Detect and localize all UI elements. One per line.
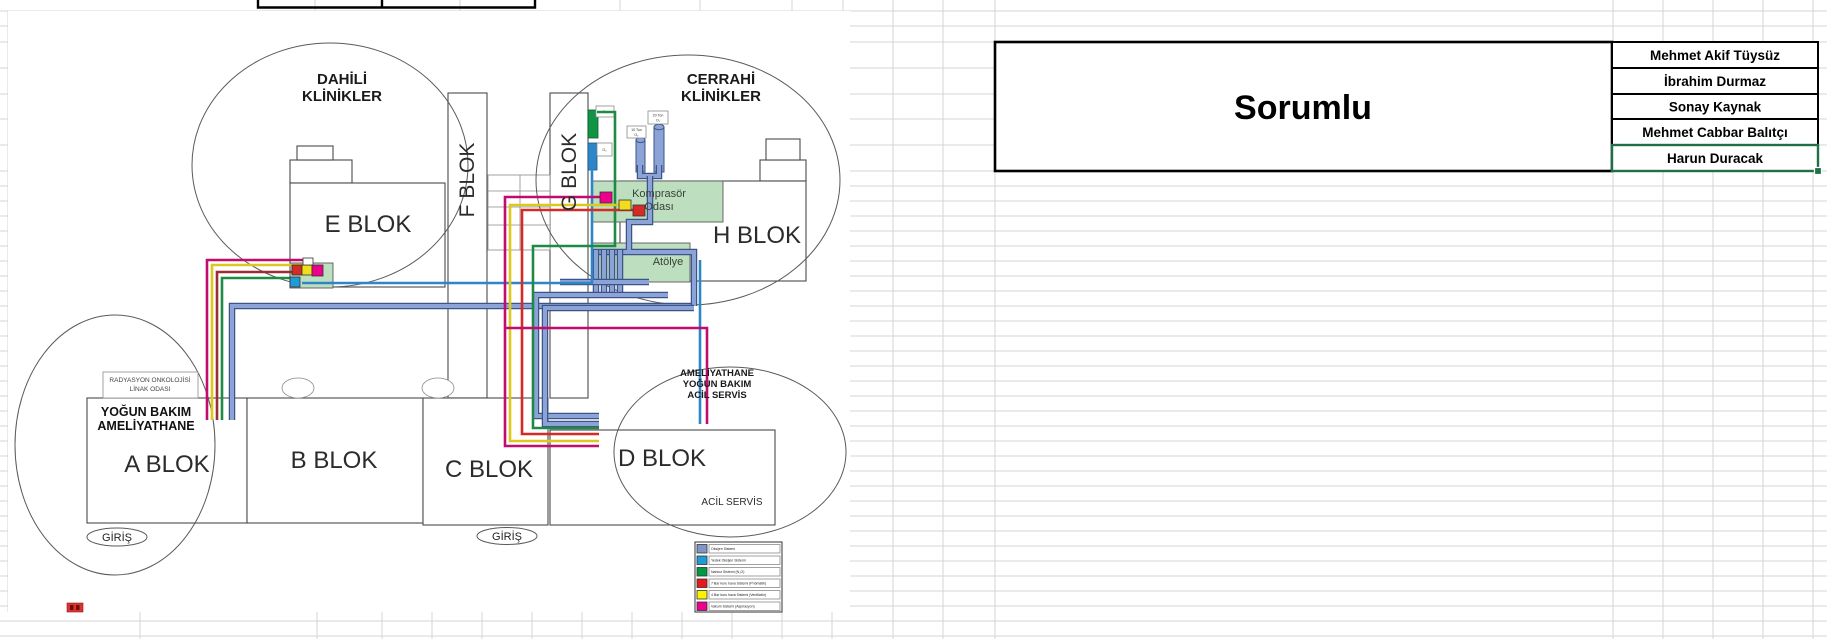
label-kompresor-line1: Komprasör [632,188,686,200]
name-2: İbrahim Durmaz [1664,74,1766,89]
legend-label-7bar: 7 Bar kuru hava Sistemi (Pnömatik) [711,582,766,586]
legend-row-6: Vakum Sistemi (Aspirasyon) [697,602,780,611]
label-radyasyon-line2: LİNAK ODASI [130,384,171,393]
legend-row-2: Yedek Oksijen Sistemi [697,556,780,565]
legend-row-3: Narkoz Sistemi (N₂O) [697,568,780,577]
label-e-blok: E BLOK [325,211,412,238]
e-manifold-chip [303,258,313,265]
vent-circle-left [282,378,314,398]
radyasyon-box [103,372,198,398]
kompresor-manifold-yellow [619,200,631,210]
sorumlu-title: Sorumlu [1234,89,1372,127]
name-1: Mehmet Akif Tüysüz [1650,48,1780,63]
name-cell-row-1[interactable]: Mehmet Akif Tüysüz [1612,42,1818,68]
kompresor-manifold-magenta [600,192,612,203]
plan-legend: Oksijen Sistemi Yedek Oksijen Sistemi Na… [695,542,782,612]
site-plan-drawing[interactable]: O₂ O₂ 10 Ton O₂ 20 Ton O₂ [8,11,850,612]
label-f-blok: F BLOK [456,143,479,218]
name-5: Harun Duracak [1667,151,1764,166]
label-b-blok: B BLOK [291,447,378,474]
legend-swatch-narkoz [697,568,707,577]
legend-row-5: 4 Bar kuru hava Sistemi (Ventilatör) [697,591,780,600]
legend-swatch-vakum [697,602,707,611]
top-cutoff-table [258,0,535,8]
legend-row-1: Oksijen Sistemi [697,545,780,554]
name-cell-row-4[interactable]: Mehmet Cabbar Balıtçı [1612,119,1818,145]
e-manifold-blue [290,277,300,287]
legend-label-oksijen: Oksijen Sistemi [711,547,735,551]
e-blok-roof-structure [290,160,352,183]
label-giris-left: GİRİŞ [102,531,132,544]
legend-label-yedek-oksijen: Yedek Oksijen Sistemi [711,559,746,563]
f-blok-building [448,93,487,398]
label-d-blok: D BLOK [618,445,706,472]
label-c-blok: C BLOK [445,456,533,483]
label-ameliyathane-line3: ACİL SERVİS [687,390,746,401]
legend-swatch-4bar [697,591,707,600]
e-manifold-magenta [312,265,323,276]
h-blok-roof-structure-top [766,139,800,160]
zone-cerrahi-line1: CERRAHİ [687,71,755,88]
h-blok-roof-structure [760,160,806,181]
legend-label-4bar: 4 Bar kuru hava Sistemi (Ventilatör) [711,593,766,597]
e-blok-roof-structure-top [297,146,333,160]
zone-dahili-line2: KLİNİKLER [302,88,382,105]
label-ameliyathane-line2: YOĞUN BAKIM [683,378,752,390]
red-marker [67,603,83,612]
label-g-blok: G BLOK [558,133,581,211]
label-a-blok: A BLOK [124,451,209,478]
sorumlu-table: Sorumlu Mehmet Akif Tüysüz İbrahim Durma… [995,42,1822,175]
label-atolye: Atölye [653,256,684,268]
label-ameliyathane-line1: AMELİYATHANE [680,368,754,379]
label-yogun-bakim-line2: AMELİYATHANE [97,418,194,433]
name-cell-row-3[interactable]: Sonay Kaynak [1612,94,1818,119]
legend-label-vakum: Vakum Sistemi (Aspirasyon) [711,605,755,609]
name-cell-row-2[interactable]: İbrahim Durmaz [1612,68,1818,94]
name-4: Mehmet Cabbar Balıtçı [1642,125,1788,140]
zone-cerrahi-line2: KLİNİKLER [681,88,761,105]
name-3: Sonay Kaynak [1669,100,1762,115]
backup-o2-source-bar [588,143,597,170]
legend-label-narkoz: Narkoz Sistemi (N₂O) [711,570,744,574]
legend-row-4: 7 Bar kuru hava Sistemi (Pnömatik) [697,579,780,588]
e-manifold-red [292,265,302,275]
zone-dahili-line1: DAHİLİ [317,71,367,88]
legend-swatch-7bar [697,579,707,588]
label-yogun-bakim-line1: YOĞUN BAKIM [101,404,191,419]
label-radyasyon-line1: RADYASYON ONKOLOJİSİ [109,375,190,384]
tank-label-20ton-l1: 20 Ton [653,114,664,118]
label-giris-right: GİRİŞ [492,530,522,543]
label-h-blok: H BLOK [713,222,801,249]
tank-label-10ton-l2: O₂ [634,133,639,137]
name-cell-row-5-selected[interactable]: Harun Duracak [1612,145,1822,175]
o2-tank-20ton-cap [654,124,664,130]
tank-label-10ton-l1: 10 Ton [631,128,642,132]
sheet-canvas: O₂ O₂ 10 Ton O₂ 20 Ton O₂ [0,0,1827,639]
kompresor-manifold-red [633,205,645,216]
spreadsheet-view: O₂ O₂ 10 Ton O₂ 20 Ton O₂ [0,0,1827,639]
legend-swatch-yedek-oksijen [697,556,707,565]
vent-circle-right [422,378,454,398]
label-acil-servis: ACİL SERVİS [701,495,762,508]
e-manifold-yellow [302,265,312,275]
fill-handle[interactable] [1815,168,1822,175]
label-kompresor-line2: Odası [644,201,673,213]
tank-label-20ton-l2: O₂ [656,119,661,123]
legend-swatch-oksijen [697,545,707,554]
gas-chip-2-label: O₂ [602,148,607,152]
